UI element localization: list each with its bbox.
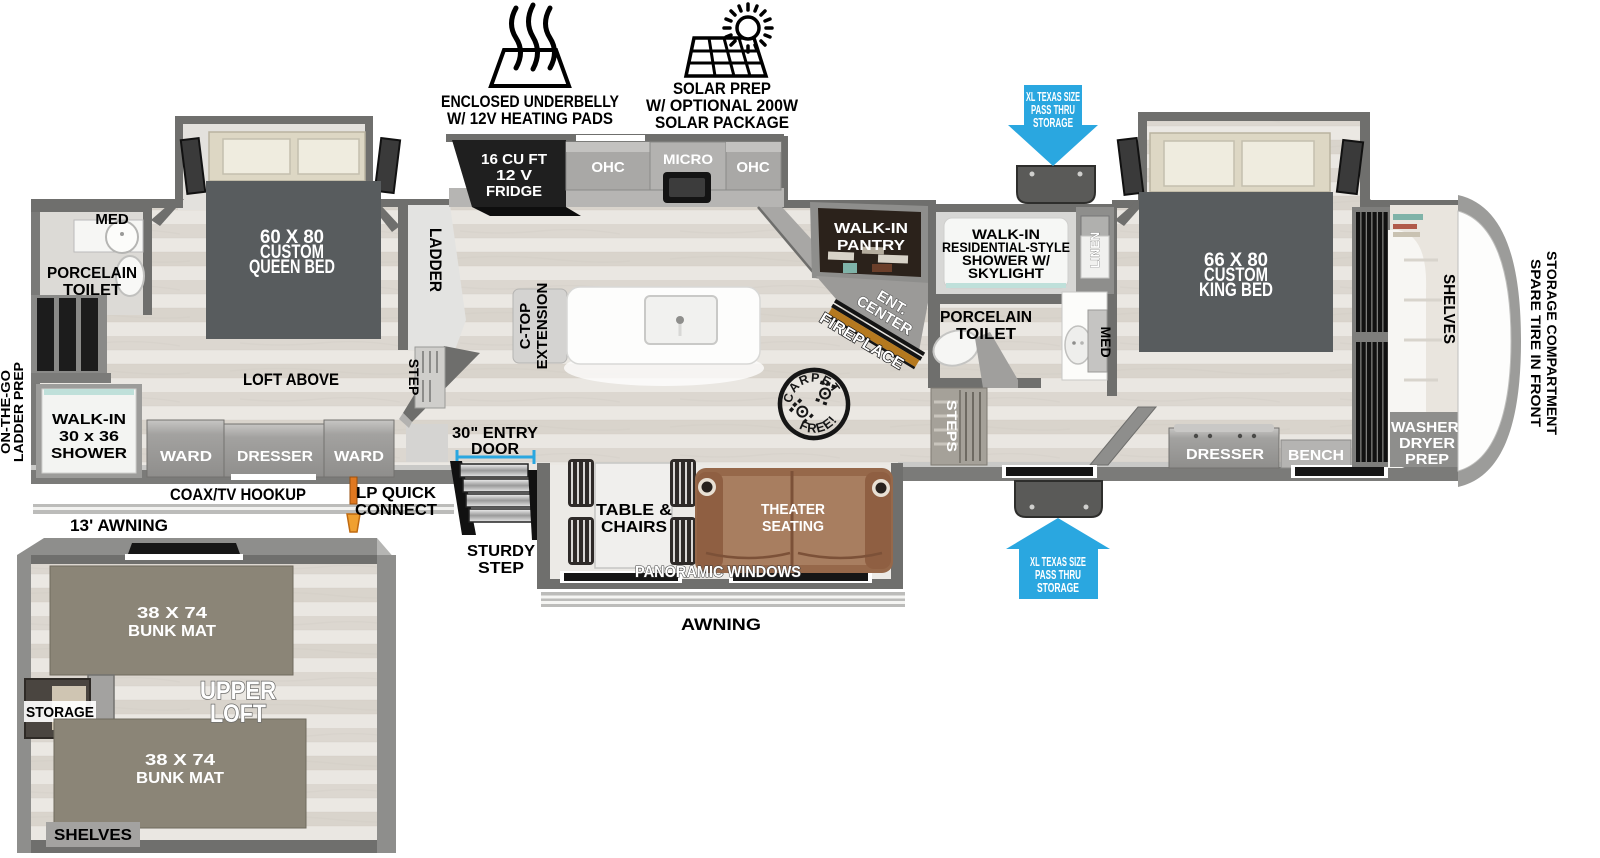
svg-text:LADDER PREP: LADDER PREP [11,362,26,462]
svg-text:SKYLIGHT: SKYLIGHT [968,266,1045,281]
svg-text:XL TEXAS SIZE: XL TEXAS SIZE [1030,555,1086,569]
svg-text:SHELVES: SHELVES [1440,274,1457,344]
svg-text:OHC: OHC [736,159,770,176]
svg-text:SPARE TIRE IN FRONT: SPARE TIRE IN FRONT [1528,259,1543,428]
svg-text:STORAGE: STORAGE [26,704,94,721]
svg-text:OHC: OHC [591,159,625,176]
svg-text:STORAGE: STORAGE [1033,116,1073,130]
svg-text:SOLAR PACKAGE: SOLAR PACKAGE [655,113,789,132]
svg-text:LP QUICK: LP QUICK [356,485,436,502]
svg-text:PORCELAIN: PORCELAIN [940,309,1032,326]
svg-text:DRESSER: DRESSER [237,448,313,465]
svg-text:12 V: 12 V [496,167,532,184]
svg-text:STEP: STEP [478,560,524,577]
svg-text:LINEN: LINEN [1088,232,1102,268]
svg-text:BUNK MAT: BUNK MAT [136,770,224,787]
svg-text:STEP: STEP [406,359,422,396]
svg-text:WALK-IN: WALK-IN [834,220,908,237]
svg-text:PASS THRU: PASS THRU [1031,103,1075,117]
svg-text:CONNECT: CONNECT [355,502,437,519]
svg-text:W/ 12V HEATING PADS: W/ 12V HEATING PADS [447,109,613,128]
svg-text:16 CU FT: 16 CU FT [481,151,547,168]
svg-text:STURDY: STURDY [467,543,535,560]
svg-text:38 X 74: 38 X 74 [137,605,207,622]
svg-text:13' AWNING: 13' AWNING [70,516,168,535]
svg-text:SHOWER: SHOWER [51,445,127,462]
svg-text:PANORAMIC WINDOWS: PANORAMIC WINDOWS [635,564,801,581]
svg-text:PASS THRU: PASS THRU [1035,568,1081,582]
svg-text:LADDER: LADDER [426,228,445,292]
svg-text:LOFT ABOVE: LOFT ABOVE [243,370,339,389]
svg-text:DOOR: DOOR [471,441,519,458]
svg-text:38 X 74: 38 X 74 [145,752,215,769]
svg-text:FRIDGE: FRIDGE [486,183,542,200]
svg-text:LOFT: LOFT [210,700,266,728]
svg-text:MICRO: MICRO [663,151,713,167]
svg-text:STORAGE COMPARTMENT: STORAGE COMPARTMENT [1544,251,1559,436]
svg-text:BENCH: BENCH [1288,447,1344,464]
svg-text:WARD: WARD [334,448,384,465]
svg-text:COAX/TV HOOKUP: COAX/TV HOOKUP [170,485,306,504]
svg-text:PANTRY: PANTRY [837,237,905,254]
svg-text:STORAGE: STORAGE [1037,581,1079,595]
svg-text:STEPS: STEPS [944,400,960,452]
svg-text:C-TOP: C-TOP [517,303,534,349]
svg-text:WALK-IN: WALK-IN [52,411,126,428]
svg-text:QUEEN BED: QUEEN BED [249,257,335,278]
svg-text:BUNK MAT: BUNK MAT [128,623,216,640]
svg-text:SHELVES: SHELVES [54,827,132,844]
svg-text:WARD: WARD [160,448,212,465]
svg-text:THEATER: THEATER [761,501,825,518]
svg-text:TABLE &: TABLE & [596,502,672,519]
svg-text:TOILET: TOILET [956,326,1016,343]
svg-text:SEATING: SEATING [762,518,824,535]
svg-text:MED: MED [95,211,129,228]
svg-text:KING BED: KING BED [1199,280,1273,301]
svg-text:DRESSER: DRESSER [1186,446,1264,463]
svg-text:CHAIRS: CHAIRS [601,519,667,536]
svg-text:MED: MED [1098,326,1114,357]
svg-text:PORCELAIN: PORCELAIN [47,265,137,282]
svg-text:DRYER: DRYER [1399,435,1455,452]
svg-text:30 x 36: 30 x 36 [59,428,119,445]
svg-text:XL TEXAS SIZE: XL TEXAS SIZE [1026,90,1080,104]
svg-text:EXTENSION: EXTENSION [534,283,551,370]
svg-text:AWNING: AWNING [681,615,761,634]
svg-text:30" ENTRY: 30" ENTRY [452,425,538,442]
svg-text:PREP: PREP [1405,451,1449,468]
svg-text:WASHER/: WASHER/ [1391,419,1464,436]
